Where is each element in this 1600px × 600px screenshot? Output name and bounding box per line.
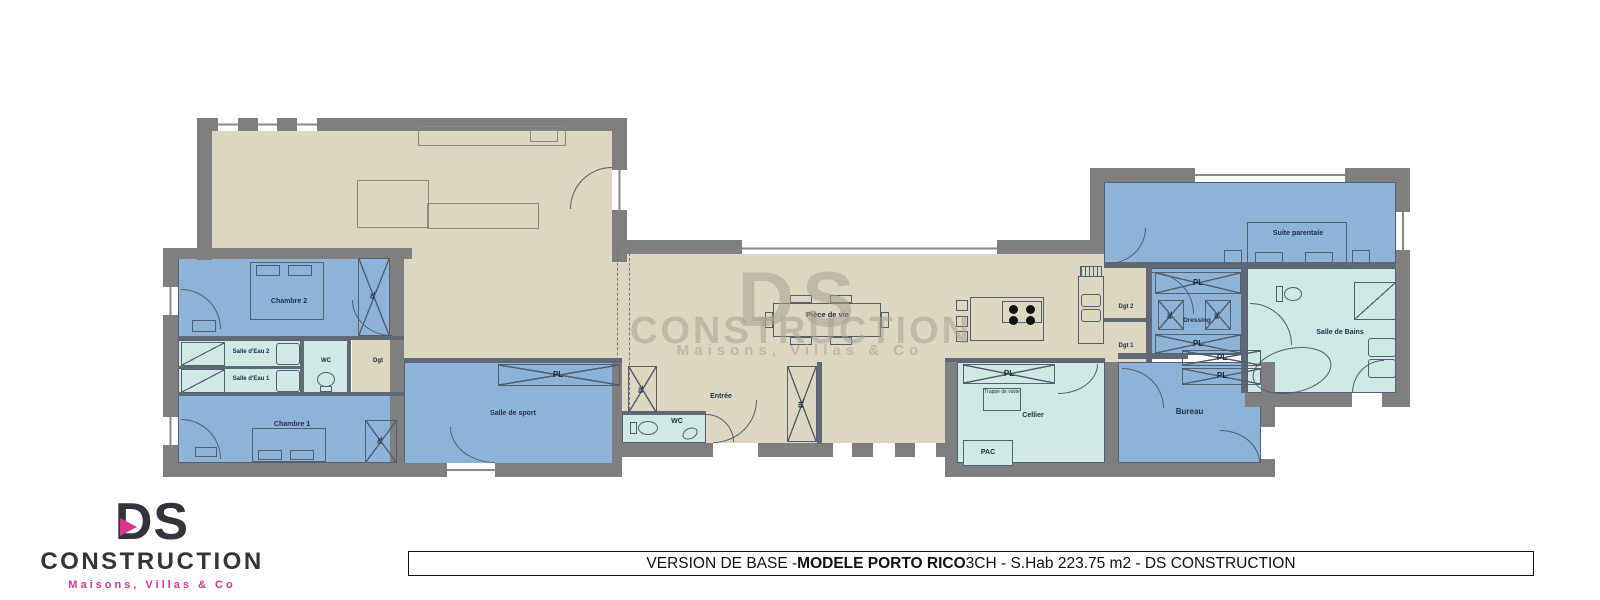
label-chambre-1: Chambre 1 [232,421,352,429]
toilet-icon [1284,287,1302,301]
label-suite-parentale: Suite parentale [1228,230,1368,238]
wall [945,362,957,463]
toilet-tank-icon [320,386,332,392]
washbasin-icon [1368,338,1396,357]
partition [1104,318,1148,322]
sink-icon [1081,309,1101,322]
floorplan-sheet: PL PL PL PL PL PL PL PL PL PL PL PL [0,0,1600,600]
pillow-icon [258,450,282,460]
toilet-tank-icon [630,422,637,434]
label-dressing: Dressing [1152,317,1242,324]
closet-pl-label: PL [989,370,1029,378]
window [915,443,936,457]
window [612,170,627,210]
pillow-icon [256,265,280,276]
closet-pl-label: PL [1202,372,1242,380]
label-degagement: Dgt [352,358,404,365]
label-salle-eau-1: Salle d'Eau 1 [220,376,282,383]
closet-pl-label: PL [1202,354,1242,362]
label-dgt-1: Dgt 1 [1104,343,1148,350]
pillow-icon [288,265,312,276]
label-chambre-2: Chambre 2 [224,298,354,306]
drainer-icon [1080,266,1102,277]
title-model-name: MODELE PORTO RICO [797,555,966,573]
pillow-icon [1305,252,1333,263]
label-salle-de-bains: Salle de Bains [1280,329,1400,337]
company-logo: DS CONSTRUCTION Maisons, Villas & Co [36,498,268,591]
label-cellier: Cellier [998,412,1068,420]
partition [817,362,822,444]
title-suffix: 3CH - S.Hab 223.75 m2 - DS CONSTRUCTION [966,555,1296,573]
label-salle-de-sport: Salle de sport [404,410,622,418]
access-hatch-label: Trappe de visite [984,390,1020,396]
partition [178,336,404,340]
wall [1105,362,1118,463]
wall [612,240,742,254]
window [1396,212,1410,250]
closet-pl-label: PL [1178,340,1218,348]
window [1195,168,1345,182]
label-entree: Entrée [690,393,752,401]
closet-pl-label: PL [1178,279,1218,287]
window [833,443,852,457]
wall [997,240,1104,254]
logo-monogram: DS [36,498,268,547]
toilet-icon [317,372,335,387]
window [258,118,277,131]
wall [1090,182,1104,252]
dashed-line [617,243,618,415]
wall [197,118,212,260]
label-pac: PAC [963,449,1013,457]
wall [612,118,627,170]
shower-icon [1354,282,1396,320]
closet-pl-label: PL [378,432,384,448]
title-version-prefix: VERSION DE BASE - [646,555,797,573]
nightstand-icon [1224,250,1242,264]
window [713,443,758,457]
partition [404,358,622,363]
wall [622,443,713,457]
label-wc-entree: WC [652,418,702,426]
cooktop-icon [1002,301,1042,323]
closet-pl-label: PL [538,371,578,379]
partition [347,338,351,395]
closet-pl-label: PL [639,381,645,397]
window [742,243,997,254]
logo-company-name: CONSTRUCTION [36,548,268,576]
window [218,118,238,131]
partition [945,358,1105,362]
wall [612,210,627,262]
label-wc-chambres: WC [306,358,346,365]
wall [163,463,622,477]
wall [1245,393,1410,407]
sofa-icon [427,203,539,229]
sideboard-icon [530,130,558,142]
closet-pl-label: PL [799,395,806,413]
window [1352,393,1382,407]
wall [1396,168,1410,407]
label-salle-eau-2: Salle d'Eau 2 [220,349,282,356]
label-bureau: Bureau [1118,407,1261,416]
plan-title-bar: VERSION DE BASE - MODELE PORTO RICO 3CH … [408,551,1534,576]
partition [300,338,304,395]
nightstand-icon [1352,250,1370,264]
wall [758,443,805,457]
logo-tagline: Maisons, Villas & Co [36,579,268,591]
pillow-icon [290,450,314,460]
window [163,417,178,445]
window [447,463,495,477]
window [163,287,178,315]
window [1261,427,1275,459]
pillow-icon [1255,252,1283,263]
shower-icon [181,342,225,366]
toilet-tank-icon [1276,286,1283,302]
shower-icon [181,369,225,393]
watermark-tagline: Maisons, Villas & Co [660,343,940,358]
label-dgt-2: Dgt 2 [1104,304,1148,311]
cooktop-burners-icon [1009,305,1018,314]
room-living-floor-south [404,260,612,362]
sofa-icon [357,180,429,228]
sink-icon [1081,294,1101,307]
window [297,118,317,131]
window [873,443,895,457]
